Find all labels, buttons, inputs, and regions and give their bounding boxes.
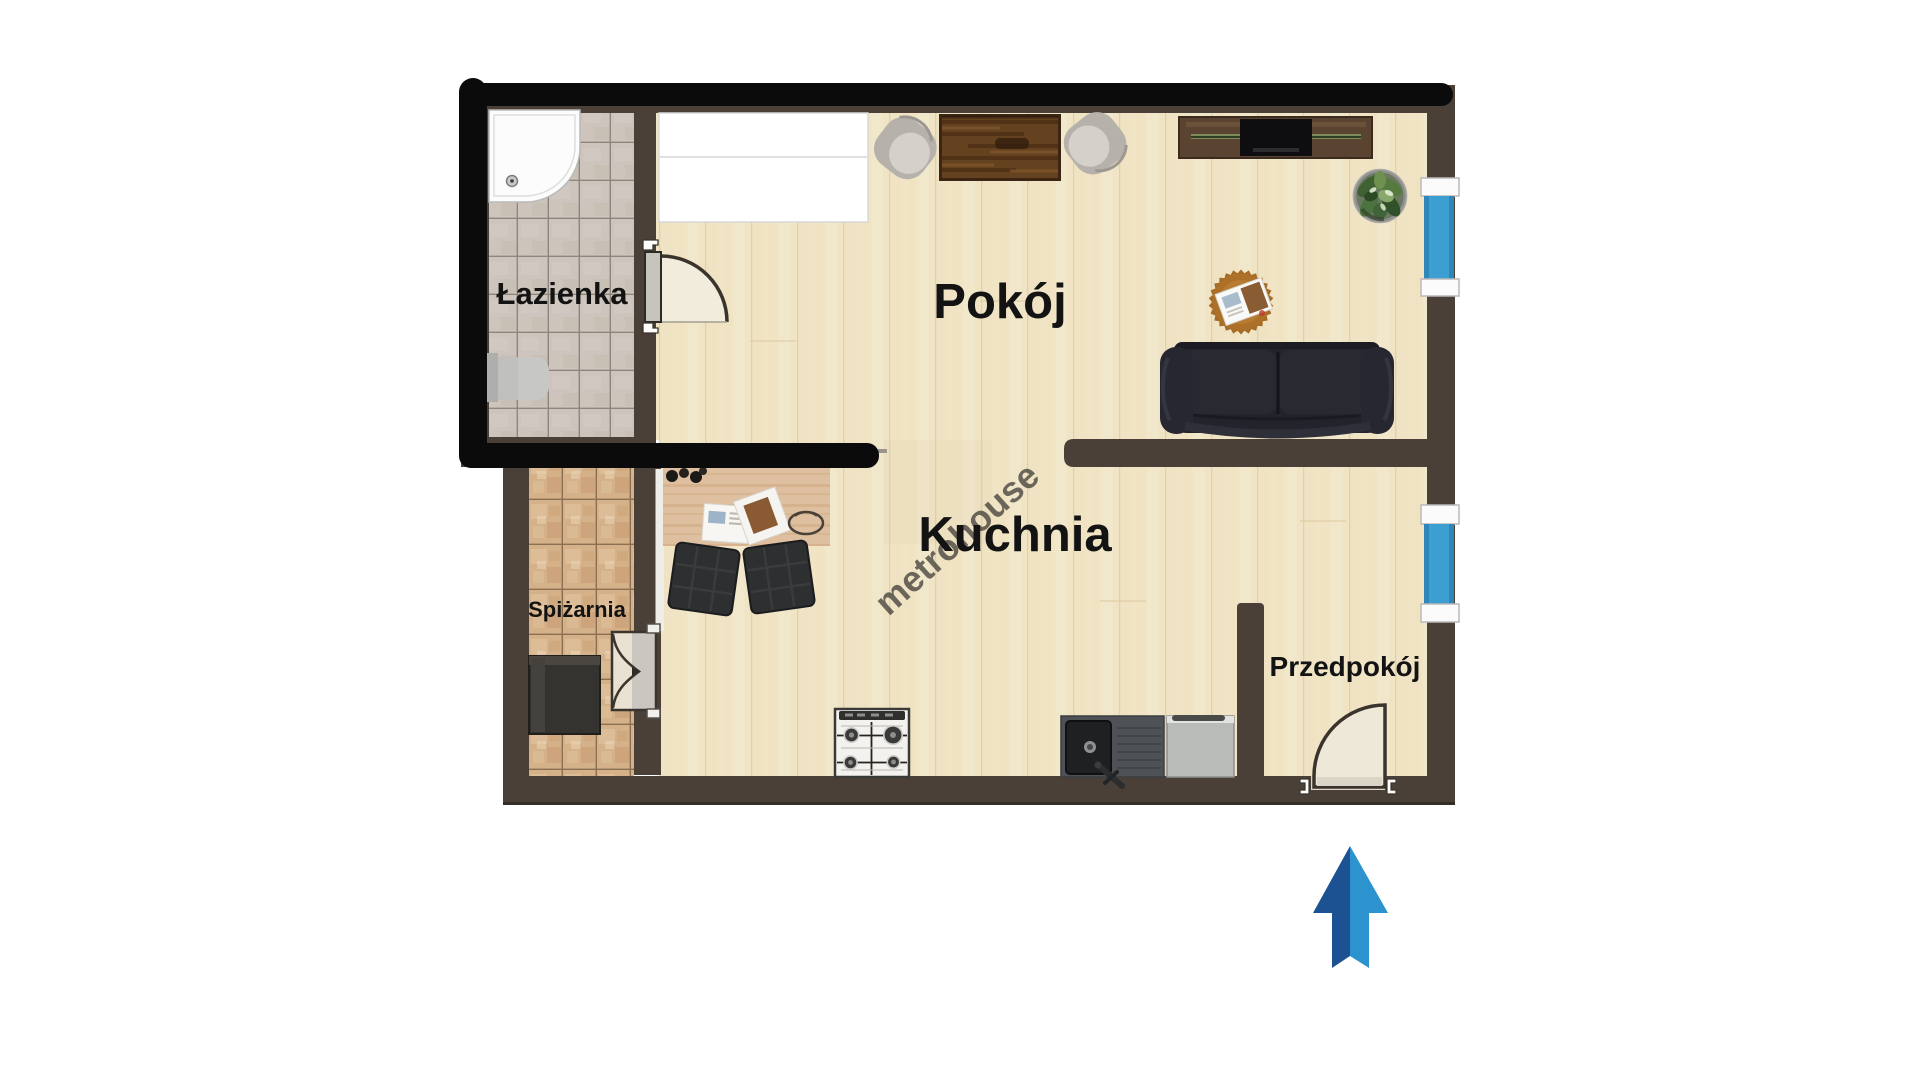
svg-text:Pokój: Pokój bbox=[933, 275, 1066, 329]
svg-text:Spiżarnia: Spiżarnia bbox=[528, 597, 627, 622]
svg-text:Łazienka: Łazienka bbox=[497, 276, 629, 311]
svg-text:Przedpokój: Przedpokój bbox=[1270, 651, 1421, 682]
